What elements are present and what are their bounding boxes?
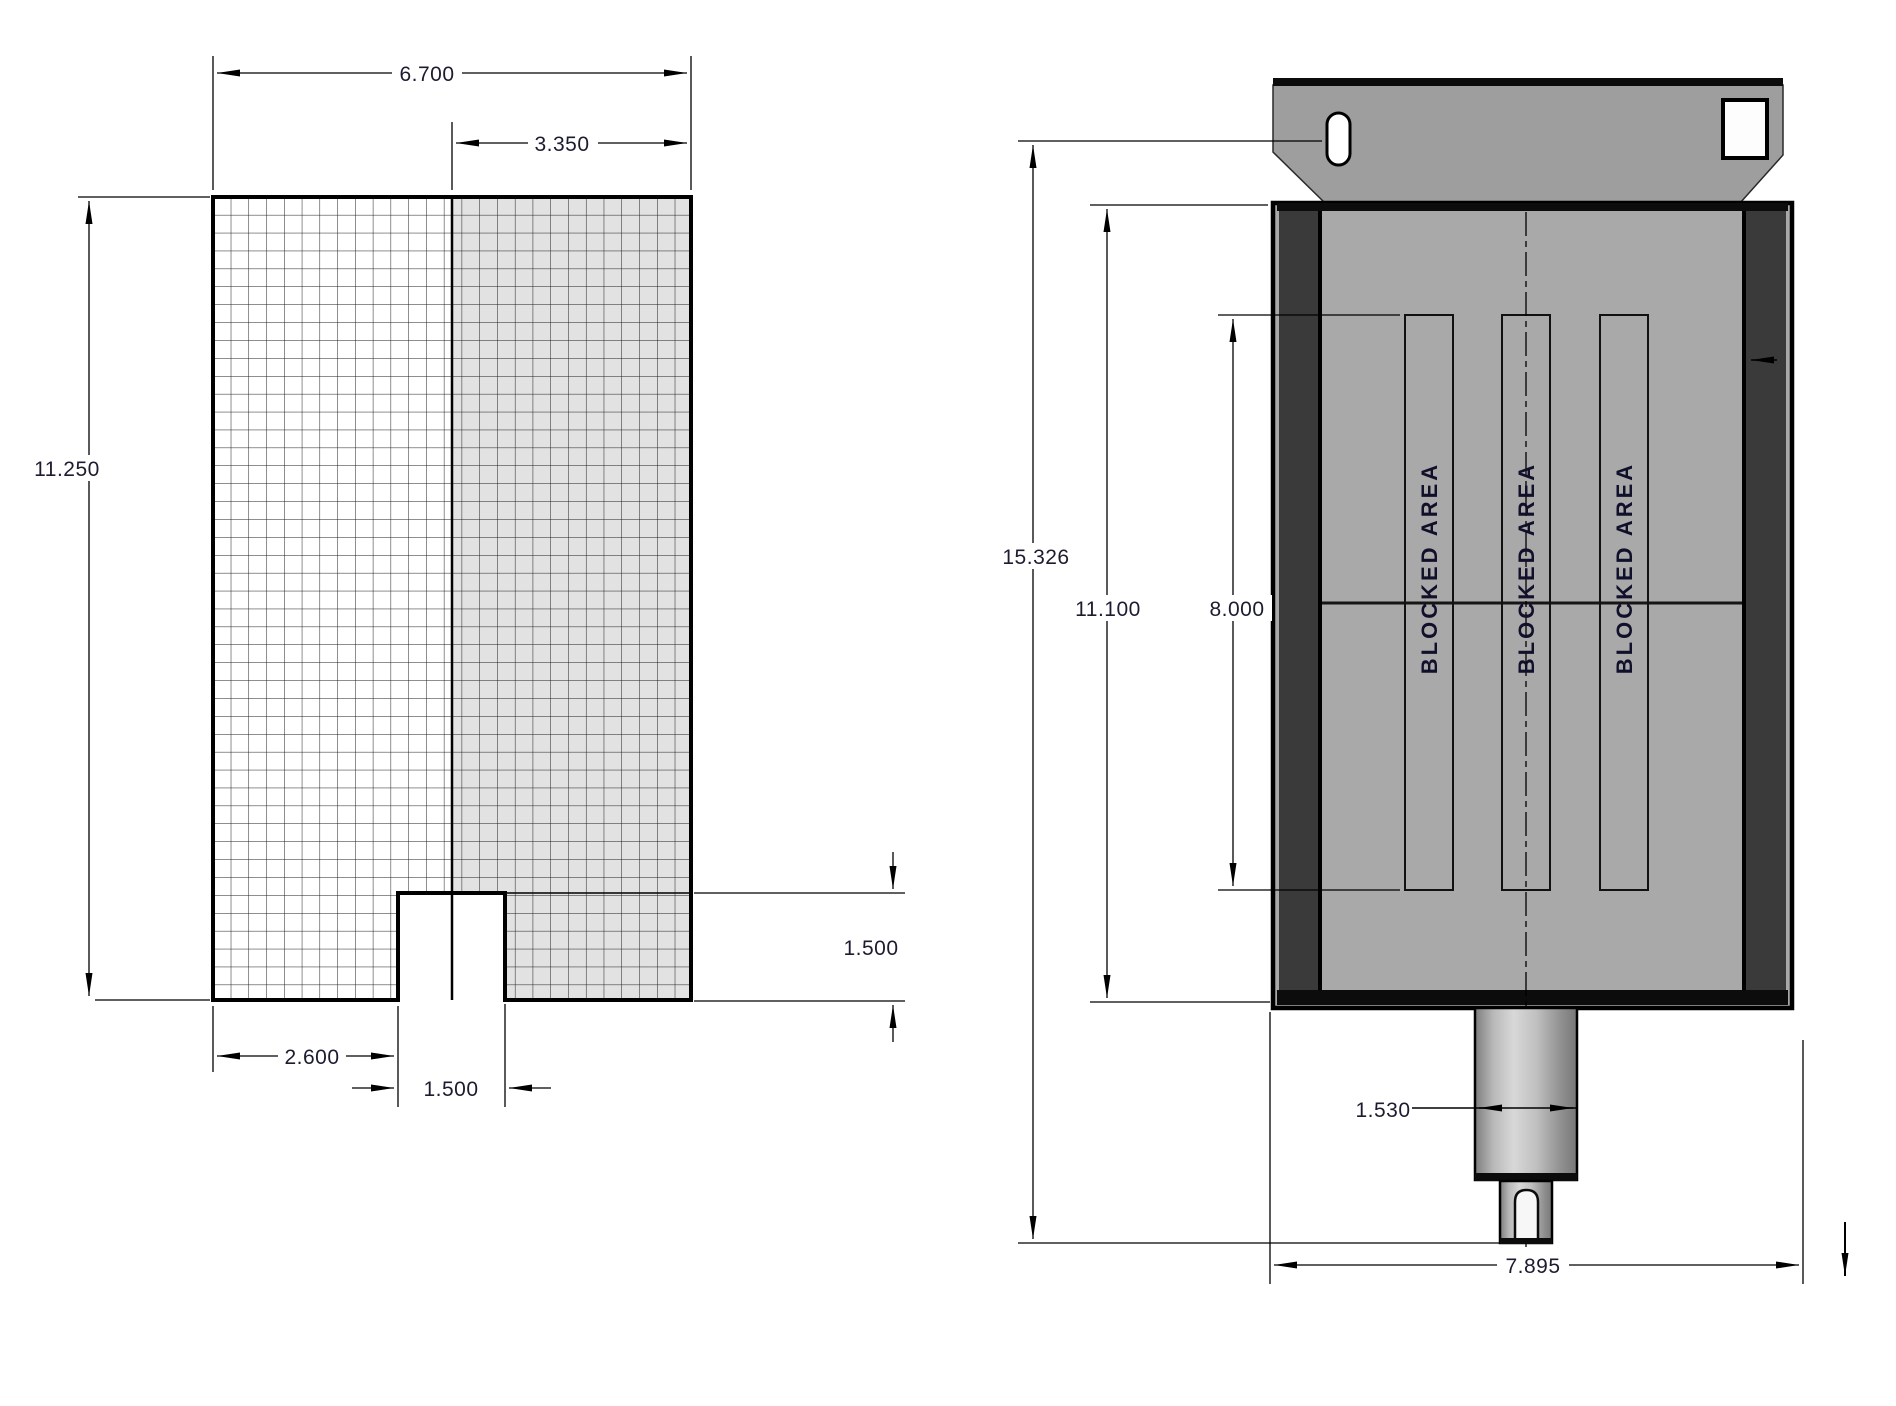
dim-slot-width-label: 1.500 (423, 1078, 478, 1101)
dim-slot-offset-label: 2.600 (284, 1046, 339, 1069)
dim-half-width: 3.350 (452, 122, 687, 190)
shaft-tip-bottom-edge (1500, 1238, 1552, 1244)
dim-half-width-label: 3.350 (534, 133, 589, 156)
blocked-area-label-2: BLOCKED AREA (1514, 462, 1539, 674)
right-side-rail (1746, 209, 1786, 1002)
shaft-tip-slot (1515, 1190, 1538, 1243)
left-side-rail (1279, 209, 1318, 1002)
technical-drawing-canvas: 6.700 3.350 11.250 2.600 (0, 0, 1896, 1406)
dim-overall-height-label: 11.250 (34, 458, 100, 481)
grid-plate-view: 6.700 3.350 11.250 2.600 (28, 56, 906, 1107)
dim-slot-depth-label: 1.500 (843, 937, 898, 960)
body-bottom-edge (1277, 990, 1788, 1005)
shaft-cylinder (1475, 1008, 1577, 1180)
technical-drawing-page: 6.700 3.350 11.250 2.600 (0, 0, 1896, 1406)
dim-body-height-label: 11.100 (1075, 598, 1141, 621)
dim-overall-height: 11.250 (28, 197, 210, 1000)
dim-total-height-label: 15.326 (1002, 546, 1069, 569)
blocked-area-label-1: BLOCKED AREA (1417, 462, 1442, 674)
bracket-top-edge (1273, 78, 1783, 86)
dim-slot-offset: 2.600 (213, 1006, 398, 1107)
actuator-side-view: BLOCKED AREA BLOCKED AREA BLOCKED AREA 1… (996, 78, 1845, 1284)
dim-shaft-diameter-label: 1.530 (1355, 1099, 1410, 1122)
blocked-area-label-3: BLOCKED AREA (1612, 462, 1637, 674)
bracket-square-hole (1723, 100, 1767, 158)
dim-slot-depth: 1.500 (694, 852, 906, 1042)
body-top-edge (1277, 203, 1788, 211)
bracket-slot-hole (1327, 113, 1350, 165)
dim-overall-width-side-label: 7.895 (1505, 1255, 1560, 1278)
dim-blocked-height-label: 8.000 (1209, 598, 1264, 621)
dim-overall-width-label: 6.700 (399, 63, 454, 86)
